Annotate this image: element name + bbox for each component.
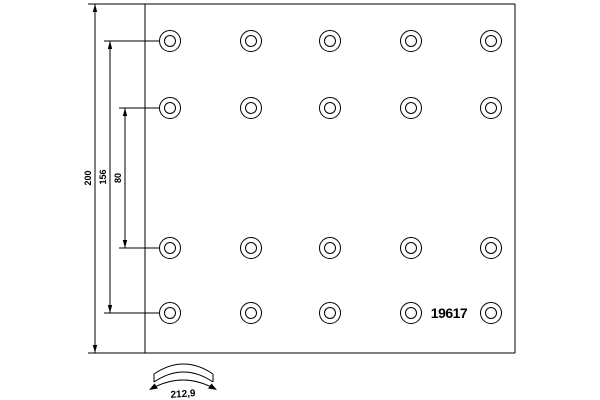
dimension-total-width: 200 (83, 4, 97, 353)
rivet-hole-outer (320, 238, 341, 259)
rivet-hole-inner (246, 36, 257, 47)
rivet-hole-outer (241, 98, 262, 119)
rivet-hole-inner (406, 308, 417, 319)
rivet-hole-outer (241, 303, 262, 324)
rivet-hole-outer (481, 303, 502, 324)
rivet-hole-inner (246, 243, 257, 254)
rivet-hole-inner (246, 308, 257, 319)
rivet-hole-outer (320, 31, 341, 52)
rivet-hole-inner (325, 36, 336, 47)
arrowhead-right-icon (208, 384, 217, 391)
arrowhead-up-icon (108, 41, 112, 49)
rivet-hole-inner (406, 36, 417, 47)
dimension-label-inner-spacing: 80 (113, 173, 123, 183)
rivet-hole-inner (246, 103, 257, 114)
rivet-hole-outer (160, 31, 181, 52)
rivet-hole-inner (325, 243, 336, 254)
rivet-hole-inner (165, 308, 176, 319)
rivet-hole-inner (486, 103, 497, 114)
dimension-outer-hole-spacing: 156 (98, 41, 160, 313)
arrowhead-down-icon (123, 240, 127, 248)
arrowhead-up-icon (123, 108, 127, 116)
rivet-hole-outer (320, 98, 341, 119)
dimension-label-outer-spacing: 156 (98, 169, 108, 184)
rivet-hole-outer (401, 238, 422, 259)
brake-lining-drawing: 200 156 80 19617 (0, 0, 600, 400)
rivet-hole-outer (160, 98, 181, 119)
dimension-label-total-width: 200 (83, 170, 93, 185)
technical-drawing-page: 200 156 80 19617 (0, 0, 600, 400)
arc-dimension-curve (151, 380, 215, 389)
rivet-hole-inner (486, 36, 497, 47)
rivet-hole-inner (406, 103, 417, 114)
rivet-hole-outer (241, 238, 262, 259)
arrowhead-up-icon (93, 4, 97, 12)
rivet-hole-inner (486, 308, 497, 319)
part-number: 19617 (431, 305, 468, 321)
arrowhead-down-icon (93, 345, 97, 353)
rivet-hole-outer (160, 303, 181, 324)
rivet-hole-outer (320, 303, 341, 324)
rivet-hole-outer (160, 238, 181, 259)
arrowhead-left-icon (149, 384, 158, 391)
rivet-hole-outer (481, 238, 502, 259)
lining-plate-outline (88, 4, 515, 353)
rivet-hole-inner (165, 36, 176, 47)
rivet-hole-outer (481, 31, 502, 52)
dimension-inner-hole-spacing: 80 (113, 108, 160, 248)
rivet-hole-outer (241, 31, 262, 52)
arrowhead-down-icon (108, 305, 112, 313)
rivet-hole-inner (486, 243, 497, 254)
rivet-hole-inner (325, 103, 336, 114)
rivet-hole-inner (406, 243, 417, 254)
rivet-hole-outer (481, 98, 502, 119)
rivet-hole-inner (165, 243, 176, 254)
rivet-hole-outer (401, 98, 422, 119)
rivet-hole-outer (401, 303, 422, 324)
dimension-label-arc-width: 212,9 (170, 388, 196, 400)
hole-grid (160, 31, 502, 324)
rivet-hole-inner (165, 103, 176, 114)
arc-cross-section: 212,9 (149, 364, 217, 400)
rivet-hole-inner (325, 308, 336, 319)
rivet-hole-outer (401, 31, 422, 52)
